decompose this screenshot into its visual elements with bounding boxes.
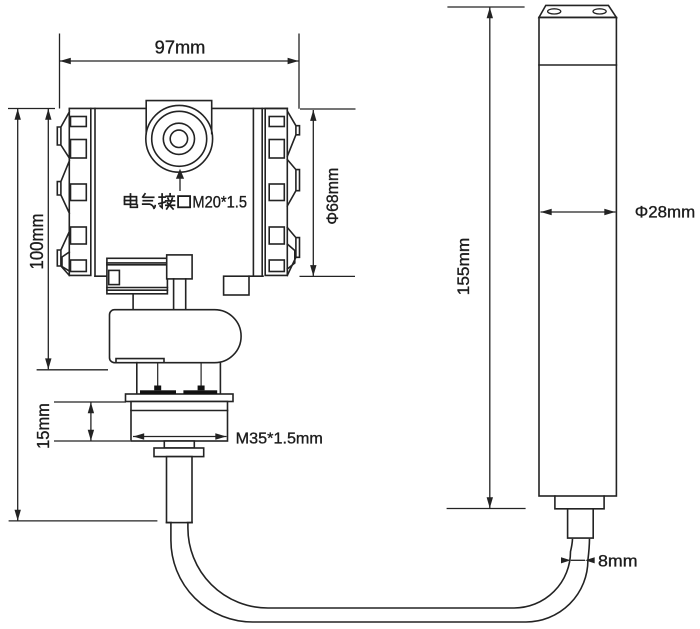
svg-text:M20*1.5: M20*1.5 [192, 192, 247, 211]
svg-text:97mm: 97mm [155, 37, 206, 57]
svg-text:8mm: 8mm [598, 553, 638, 571]
svg-text:100mm: 100mm [27, 214, 47, 270]
svg-text:15mm: 15mm [33, 403, 53, 449]
svg-text:Φ28mm: Φ28mm [635, 204, 695, 222]
svg-text:Φ68mm: Φ68mm [324, 168, 342, 225]
svg-text:155mm: 155mm [455, 238, 473, 296]
svg-text:M35*1.5mm: M35*1.5mm [236, 430, 323, 447]
